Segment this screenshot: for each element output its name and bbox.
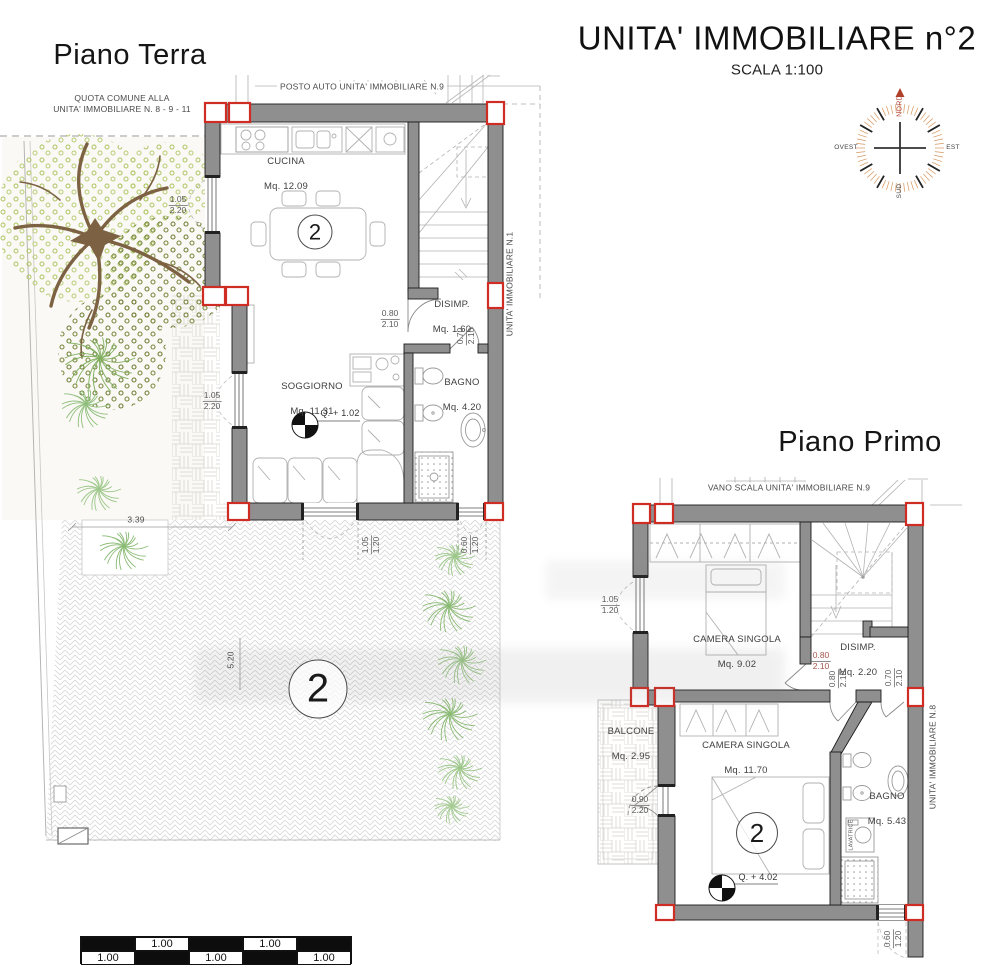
- dim-garden-width: 3.39: [127, 514, 144, 525]
- scalebar-segment: [243, 951, 297, 965]
- room-camera2: CAMERA SINGOLA Mq. 11.70: [702, 728, 790, 790]
- ground-floor-title: Piano Terra: [53, 37, 206, 75]
- note-unit-n1: UNITA' IMMOBILIARE N.1: [504, 232, 515, 337]
- scalebar-segment: [135, 951, 189, 965]
- lavatrice-label: LAVATRICE: [848, 819, 855, 850]
- dim-bagno-door-first: 0.702.10: [884, 669, 904, 688]
- room-cucina: CUCINA Mq. 12.09: [264, 144, 308, 206]
- unit-number-cucina: 2: [298, 215, 333, 250]
- dim-south-window-small: 0.601.20: [460, 536, 480, 555]
- dim-bagno-door-ground: 0.702.10: [456, 327, 476, 346]
- room-balcone: BALCONE Mq. 2.95: [608, 714, 655, 776]
- dim-kitchen-window: 1.052.20: [169, 195, 188, 215]
- dim-living-window: 1.052.20: [203, 391, 222, 411]
- first-floor-title: Piano Primo: [778, 424, 941, 462]
- room-soggiorno: SOGGIORNO Mq. 11.31: [281, 369, 342, 431]
- room-camera1: CAMERA SINGOLA Mq. 9.02: [693, 622, 781, 684]
- scalebar-segment: 1.00: [297, 951, 351, 965]
- note-unit-n8: UNITA' IMMOBILIARE N.8: [927, 705, 938, 810]
- dim-camera-door: 0.802.10: [812, 651, 831, 671]
- room-bagno-first: BAGNO Mq. 5.43: [868, 779, 907, 841]
- dim-south-window-first: 0.601.20: [883, 930, 903, 949]
- dim-west-window-first: 1.051.20: [601, 595, 620, 615]
- dim-parking-length: 5.20: [225, 651, 236, 668]
- note-quota-comune: QUOTA COMUNE ALLA UNITA' IMMOBILIARE N. …: [53, 93, 191, 115]
- note-vano-scala: VANO SCALA UNITA' IMMOBILIARE N.9: [705, 482, 873, 493]
- sheet-scale: SCALA 1:100: [731, 60, 823, 80]
- compass-north-label: NORD: [895, 95, 904, 117]
- dim-disimp-door-ground: 0.802.10: [381, 309, 400, 329]
- scalebar-segment: 1.00: [243, 937, 297, 951]
- scalebar-segment: [81, 937, 135, 951]
- scalebar-segment: [297, 937, 351, 951]
- scalebar-segment: [189, 937, 243, 951]
- scale-bar: 1.00 1.00 1.00 1.00 1.00: [80, 936, 352, 964]
- compass-west-label: OVEST: [834, 144, 858, 152]
- compass-south-label: SUD: [896, 184, 904, 199]
- unit-number-camera: 2: [736, 812, 778, 854]
- dim-disimp-door-first: 0.802.10: [828, 670, 848, 689]
- scalebar-segment: 1.00: [189, 951, 243, 965]
- quota-first: Q. + 4.02: [738, 872, 777, 884]
- fence-post: [54, 786, 66, 802]
- unit-number-parking: 2: [289, 660, 348, 719]
- floorplan-sheet: UNITA' IMMOBILIARE n°2 SCALA 1:100 Piano…: [0, 0, 1000, 968]
- sheet-title: UNITA' IMMOBILIARE n°2: [578, 18, 976, 61]
- quota-ground: Q. + 1.02: [320, 408, 359, 420]
- room-bagno-ground: BAGNO Mq. 4.20: [443, 365, 482, 427]
- compass-east-label: EST: [946, 144, 960, 152]
- scalebar-segment: 1.00: [81, 951, 135, 965]
- scalebar-segment: 1.00: [135, 937, 189, 951]
- dim-south-window: 1.051.20: [361, 536, 381, 555]
- note-posto-auto: POSTO AUTO UNITA' IMMOBILIARE N.9: [277, 81, 447, 92]
- stair-above-cut: [446, 75, 500, 103]
- dim-balcone-door: 0.902.20: [631, 795, 650, 815]
